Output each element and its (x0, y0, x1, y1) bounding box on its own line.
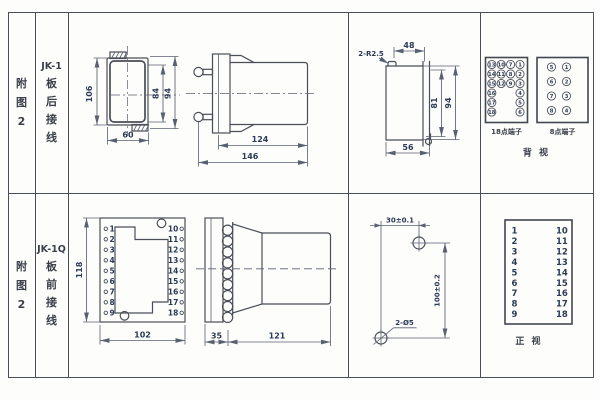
table-cell: 14 (556, 268, 568, 278)
terminal-circle: 5 (547, 63, 555, 71)
dim-100: 100±0.2 (434, 274, 442, 307)
dim-30: 30±0.1 (386, 217, 414, 225)
svg-text:1: 1 (518, 62, 522, 68)
figure-char: 附 (16, 78, 27, 89)
terminal-circle: 14 (488, 70, 496, 78)
jk1-side-view: 124 146 (186, 54, 316, 167)
svg-text:18: 18 (168, 308, 178, 317)
svg-text:17: 17 (168, 298, 178, 307)
terminal-block-18: 13 14 15 16 17 18 10 11 12 7 8 9 1 2 3 4… (486, 58, 528, 123)
terminal-circle: 6 (516, 108, 524, 116)
left-terminal: 4 (104, 256, 115, 265)
terminal-circle: 7 (507, 60, 515, 68)
figure-char: 附 (16, 261, 27, 272)
svg-text:3: 3 (518, 81, 522, 87)
svg-text:13: 13 (488, 62, 496, 68)
terminal-circle: 16 (488, 89, 496, 97)
right-terminal: 11 (168, 235, 184, 244)
svg-text:3: 3 (110, 245, 115, 254)
dim-81: 81 (430, 97, 439, 109)
terminal-circle: 8 (547, 106, 555, 114)
terminal-circle: 17 (488, 98, 496, 106)
svg-text:2: 2 (518, 72, 522, 78)
wiring-char: 线 (46, 132, 57, 143)
wiring-char: 板 (46, 78, 57, 89)
terminal-circle: 5 (516, 98, 524, 106)
dim-60: 60 (122, 131, 134, 140)
svg-text:2: 2 (110, 235, 115, 244)
front-view-terminal-table: 1 2 3 4 5 6 7 8 9 10 11 12 13 14 15 16 1… (480, 193, 595, 378)
terminal-circle: 1 (562, 63, 570, 71)
svg-text:16: 16 (168, 287, 178, 296)
right-terminal: 14 (168, 266, 184, 275)
svg-text:8: 8 (110, 298, 115, 307)
terminal-circle: 4 (562, 106, 570, 114)
terminal-circle: 18 (488, 108, 496, 116)
table-cell: 18 (556, 310, 568, 320)
table-cell: 15 (556, 279, 568, 289)
svg-text:4: 4 (110, 256, 115, 265)
terminal-circle: 10 (497, 60, 505, 68)
svg-text:5: 5 (110, 266, 115, 275)
terminal-circle: 15 (488, 79, 496, 87)
mounting-hole (157, 219, 166, 228)
wiring-char: 前 (46, 279, 57, 290)
svg-text:13: 13 (168, 256, 178, 265)
terminal-circle: 3 (516, 79, 524, 87)
row1-figure-label: 附 图 2 (8, 12, 35, 193)
label-18pt: 18点端子 (491, 127, 522, 136)
dim-102: 102 (134, 330, 151, 339)
svg-text:7: 7 (110, 287, 115, 296)
table-cell: 1 (512, 227, 518, 237)
wiring-char: 接 (46, 297, 57, 308)
drawing-sheet: 附 图 2 JK-1 板 后 接 线 附 图 2 JK-1Q 板 前 接 线 (0, 0, 600, 400)
right-terminal: 10 (168, 224, 184, 233)
left-terminal: 8 (104, 298, 115, 307)
jk1-front-view: 106 84 94 60 (85, 46, 180, 145)
svg-text:8: 8 (509, 72, 513, 78)
table-cell: 12 (556, 247, 568, 257)
svg-text:11: 11 (168, 235, 178, 244)
back-view-terminals: 13 14 15 16 17 18 10 11 12 7 8 9 1 2 3 4… (480, 12, 595, 193)
svg-text:7: 7 (550, 94, 554, 100)
terminal-circle: 9 (507, 79, 515, 87)
front-panel-plate (205, 218, 223, 322)
left-terminal: 7 (104, 287, 115, 296)
table-cell: 2 (512, 237, 518, 247)
svg-text:9: 9 (509, 81, 513, 87)
svg-text:3: 3 (565, 94, 569, 100)
wiring-char: 接 (46, 114, 57, 125)
table-cell: 16 (556, 289, 568, 299)
svg-text:1: 1 (110, 224, 115, 233)
label-8pt: 8点端子 (550, 127, 576, 136)
svg-text:7: 7 (509, 62, 513, 68)
svg-text:16: 16 (488, 91, 496, 97)
terminal-circle: 1 (516, 60, 524, 68)
svg-text:12: 12 (498, 81, 506, 87)
terminal-circle: 2 (516, 70, 524, 78)
dim-106: 106 (85, 85, 94, 102)
terminal-circle: 4 (516, 89, 524, 97)
wiring-char: 板 (46, 261, 57, 272)
caption-front-view: 正 视 (515, 335, 542, 347)
left-terminal: 5 (104, 266, 115, 275)
figure-char: 图 (16, 97, 27, 108)
table-cell: 6 (512, 279, 518, 289)
svg-text:6: 6 (550, 79, 554, 85)
svg-text:1: 1 (565, 65, 569, 71)
jk1-cutout-drawing: 2-R2.5 48 81 94 56 (348, 12, 480, 193)
table-cell: 7 (512, 289, 518, 299)
dim-121: 121 (269, 332, 286, 341)
terminal-screw (194, 112, 203, 121)
table-cell: 13 (556, 258, 568, 268)
jk1-outline-drawings: 106 84 94 60 124 146 (68, 12, 348, 193)
cutout-outline (386, 66, 423, 140)
terminal-circle: 11 (497, 70, 505, 78)
dim-124: 124 (252, 135, 269, 144)
table-cell: 9 (512, 310, 518, 320)
figure-char: 图 (16, 280, 27, 291)
dim-94: 94 (164, 88, 173, 100)
jk1q-outline-drawings: 1 2 3 4 5 6 7 8 9 10 11 12 13 14 15 16 1… (68, 193, 348, 378)
table-cell: 17 (556, 300, 568, 310)
left-terminal: 6 (104, 277, 115, 286)
terminal-circle: 6 (547, 77, 555, 85)
right-terminal: 13 (168, 256, 184, 265)
left-terminal: 1 (104, 224, 115, 233)
socket-outline (115, 227, 168, 313)
dim-94: 94 (444, 97, 453, 109)
table-cell: 3 (512, 247, 518, 257)
terminal-screw (194, 67, 203, 76)
terminal-circle: 13 (488, 60, 496, 68)
table-cell: 5 (512, 268, 518, 278)
svg-text:5: 5 (518, 100, 522, 106)
svg-text:10: 10 (498, 62, 506, 68)
wiring-char: 线 (46, 315, 57, 326)
svg-text:15: 15 (488, 81, 496, 87)
terminal-circle: 2 (562, 77, 570, 85)
right-terminal: 16 (168, 287, 184, 296)
svg-text:4: 4 (518, 91, 522, 97)
model-name-jk1q: JK-1Q (37, 245, 66, 255)
jk1q-side-view: 35 121 (196, 218, 338, 346)
svg-text:6: 6 (110, 277, 115, 286)
figure-char: 2 (18, 299, 26, 310)
left-terminal: 9 (104, 308, 115, 317)
table-cell: 4 (512, 258, 518, 268)
left-terminal: 2 (104, 235, 115, 244)
panel-lines (423, 62, 430, 147)
wiring-char: 后 (46, 96, 57, 107)
drilling-plan: 30±0.1 100±0.2 2-Ø5 (348, 193, 480, 378)
row2-figure-label: 附 图 2 (8, 193, 35, 378)
svg-text:18: 18 (488, 110, 496, 116)
table-cell: 10 (556, 227, 568, 237)
corner-ear (388, 62, 396, 67)
svg-text:15: 15 (168, 277, 178, 286)
leader-line (374, 328, 417, 345)
row2-model-cell: JK-1Q 板 前 接 线 (35, 193, 68, 378)
right-terminal: 12 (168, 245, 184, 254)
right-terminal: 18 (168, 308, 184, 317)
svg-text:14: 14 (168, 266, 178, 275)
svg-text:4: 4 (565, 108, 569, 114)
left-terminal: 3 (104, 245, 115, 254)
dim-84: 84 (152, 88, 161, 100)
svg-text:10: 10 (168, 224, 178, 233)
terminal-circle: 8 (507, 70, 515, 78)
right-terminal: 17 (168, 298, 184, 307)
dim-146: 146 (242, 152, 259, 161)
label-hole-diameter: 2-Ø5 (395, 319, 414, 327)
terminal-circle: 3 (562, 92, 570, 100)
terminal-block-8: 5 6 7 8 1 2 3 4 (537, 58, 588, 123)
terminal-circle: 12 (497, 79, 505, 87)
jk1q-front-view: 1 2 3 4 5 6 7 8 9 10 11 12 13 14 15 16 1… (75, 218, 185, 345)
label-corner-radius: 2-R2.5 (358, 50, 384, 58)
svg-text:6: 6 (518, 110, 522, 116)
dim-35: 35 (211, 332, 223, 341)
terminal-circle: 7 (547, 92, 555, 100)
svg-text:17: 17 (488, 100, 496, 106)
svg-text:11: 11 (498, 72, 506, 78)
model-name-jk1: JK-1 (41, 62, 62, 72)
svg-text:9: 9 (110, 308, 115, 317)
row1-model-cell: JK-1 板 后 接 线 (35, 12, 68, 193)
dim-56: 56 (402, 143, 414, 152)
svg-text:14: 14 (488, 72, 496, 78)
table-cell: 8 (512, 300, 518, 310)
table-cell: 11 (556, 237, 568, 247)
dim-118: 118 (75, 261, 84, 278)
drill-hole-top (411, 235, 428, 252)
dim-48: 48 (403, 41, 415, 50)
svg-text:2: 2 (565, 79, 569, 85)
svg-text:8: 8 (550, 108, 554, 114)
svg-text:5: 5 (550, 65, 554, 71)
caption-back-view: 背 视 (523, 147, 550, 159)
figure-char: 2 (18, 116, 26, 127)
svg-text:12: 12 (168, 245, 178, 254)
right-terminal: 15 (168, 277, 184, 286)
